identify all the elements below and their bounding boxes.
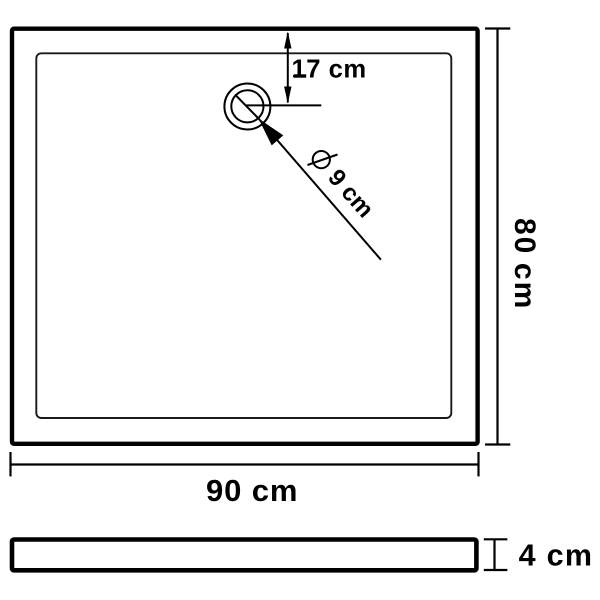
svg-text:4 cm: 4 cm <box>519 539 594 573</box>
svg-text:17 cm: 17 cm <box>292 56 367 84</box>
svg-text:90 cm: 90 cm <box>206 473 298 508</box>
svg-text:80 cm: 80 cm <box>508 218 541 310</box>
